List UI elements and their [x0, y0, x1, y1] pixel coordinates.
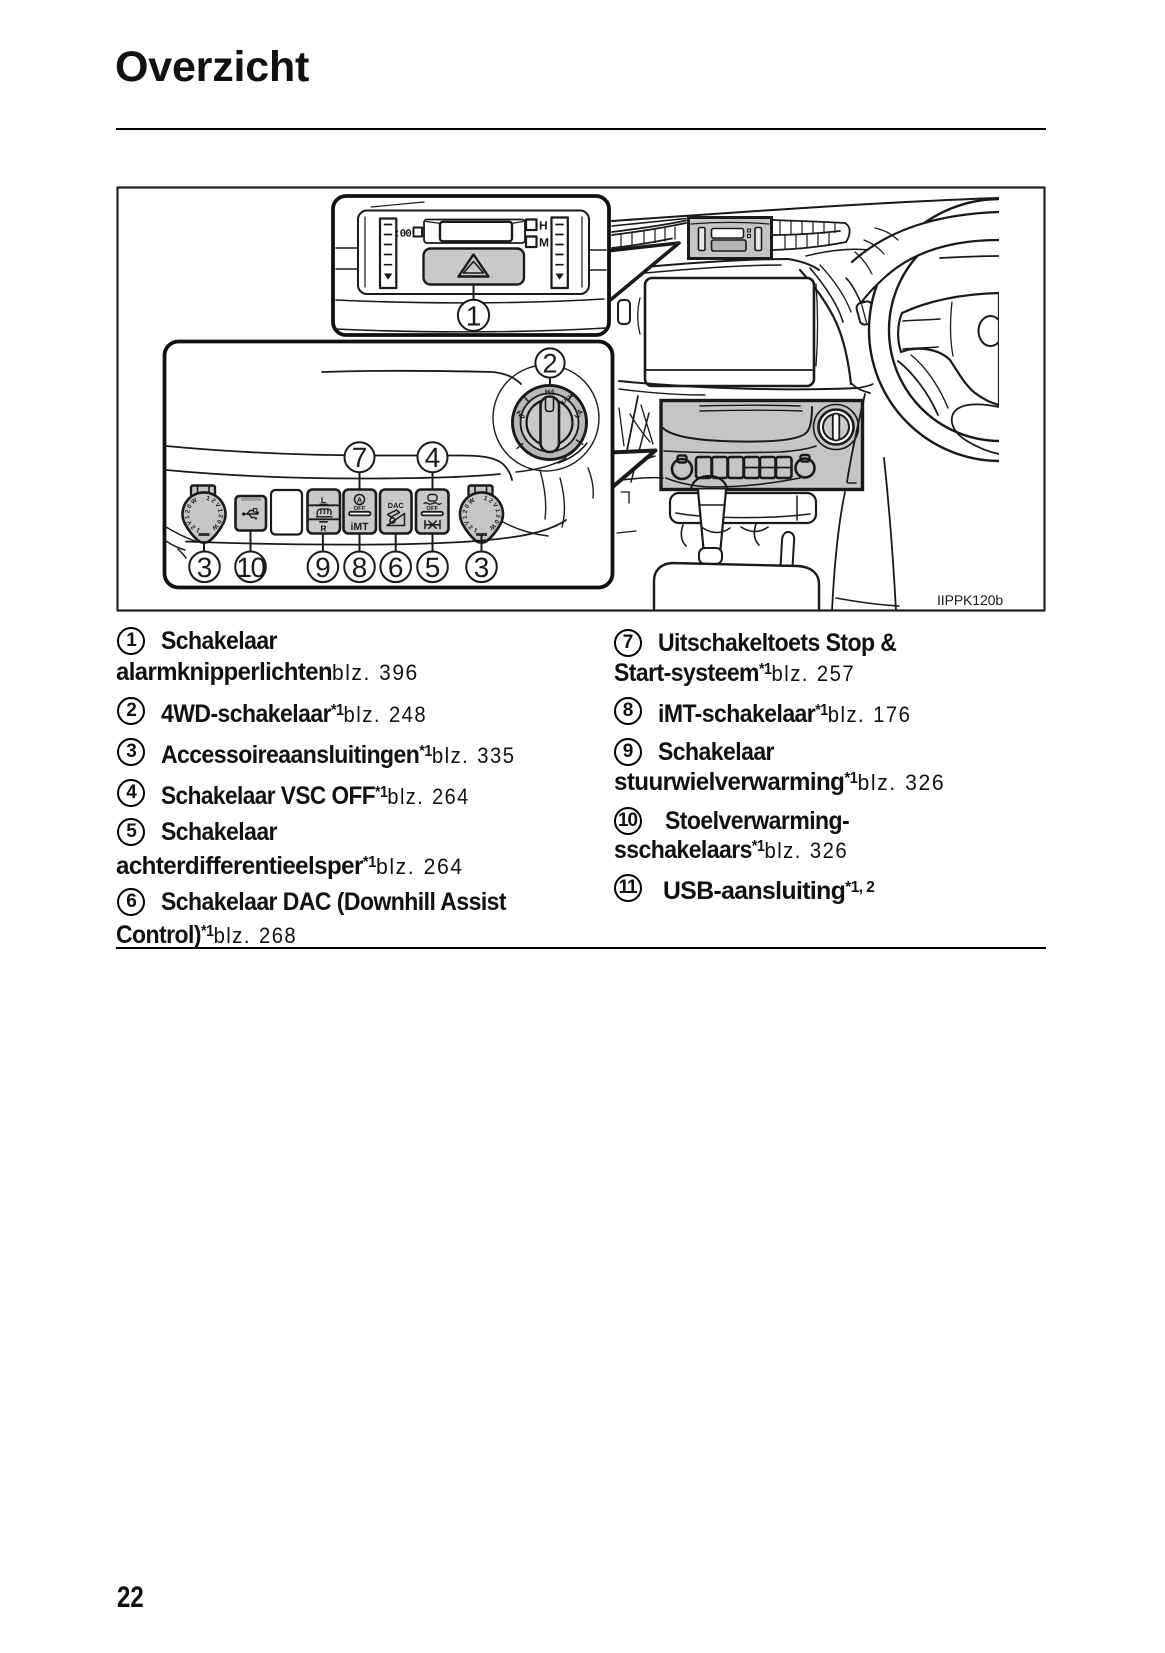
svg-text::00: :00 — [394, 229, 411, 241]
svg-text:A: A — [357, 495, 363, 504]
svg-text:8: 8 — [352, 552, 368, 583]
svg-text:9: 9 — [315, 552, 331, 583]
svg-text:IIPPK120b: IIPPK120b — [937, 592, 1003, 608]
svg-text:DAC: DAC — [388, 501, 405, 510]
svg-text:7: 7 — [352, 442, 368, 473]
svg-text:2: 2 — [542, 349, 557, 379]
svg-text:3: 3 — [474, 552, 490, 583]
svg-text:M: M — [539, 236, 549, 250]
svg-text:5: 5 — [425, 552, 441, 583]
svg-text:iMT: iMT — [350, 521, 369, 533]
svg-text:OFF: OFF — [426, 505, 438, 512]
svg-text:H4: H4 — [545, 388, 555, 397]
svg-text:OFF: OFF — [354, 505, 366, 512]
svg-text:10: 10 — [236, 552, 265, 583]
svg-text:1: 1 — [466, 300, 482, 331]
svg-text:R: R — [320, 524, 326, 534]
svg-text:4: 4 — [425, 442, 441, 473]
svg-text:3: 3 — [197, 552, 213, 583]
svg-text:6: 6 — [388, 552, 404, 583]
svg-text:L: L — [321, 495, 326, 505]
svg-text:H: H — [539, 219, 548, 233]
